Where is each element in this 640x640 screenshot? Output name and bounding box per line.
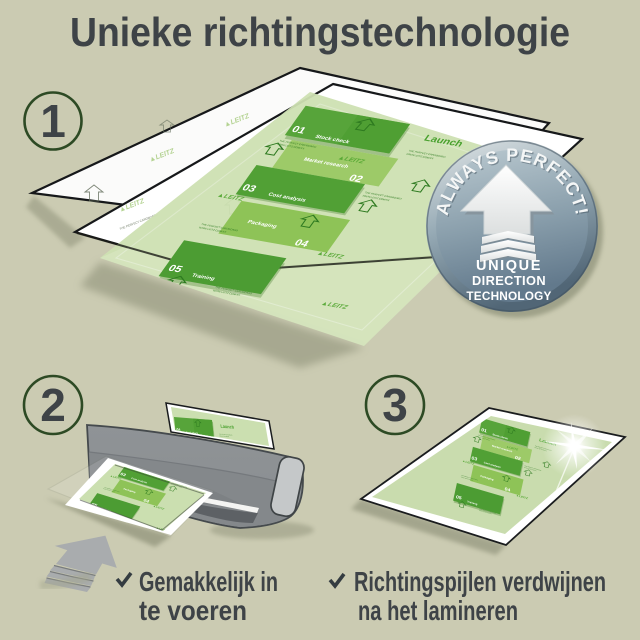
svg-text:Gemakkelijk in: Gemakkelijk in: [139, 566, 278, 597]
svg-text:DIRECTION: DIRECTION: [472, 273, 546, 288]
svg-text:Unieke richtingstechnologie: Unieke richtingstechnologie: [70, 9, 570, 55]
svg-text:te voeren: te voeren: [139, 595, 247, 626]
svg-text:TECHNOLOGY: TECHNOLOGY: [466, 289, 551, 303]
svg-text:1: 1: [40, 95, 66, 147]
svg-text:UNIQUE: UNIQUE: [476, 258, 542, 274]
svg-text:3: 3: [382, 379, 408, 431]
svg-text:na het lamineren: na het lamineren: [358, 595, 518, 626]
svg-text:Richtingspijlen verdwijnen: Richtingspijlen verdwijnen: [354, 566, 606, 597]
svg-text:2: 2: [40, 379, 66, 431]
